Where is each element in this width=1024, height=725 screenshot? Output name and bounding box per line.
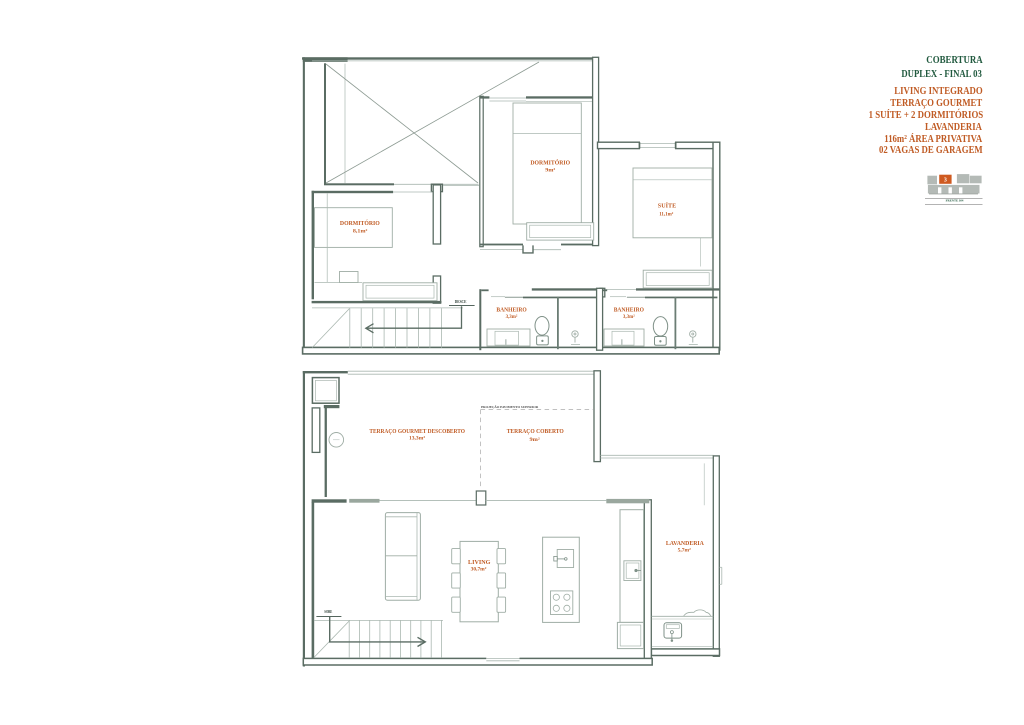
svg-text:LAVANDERIA: LAVANDERIA	[666, 540, 704, 547]
svg-text:1 SUÍTE + 2 DORMITÓRIOS: 1 SUÍTE + 2 DORMITÓRIOS	[869, 109, 984, 121]
svg-text:DUPLEX - FINAL 03: DUPLEX - FINAL 03	[901, 68, 982, 80]
svg-text:BANHEIRO: BANHEIRO	[496, 306, 526, 313]
svg-text:3,3m²: 3,3m²	[506, 314, 518, 320]
svg-text:3,3m²: 3,3m²	[623, 314, 635, 320]
svg-text:FRENTE 304: FRENTE 304	[946, 199, 964, 203]
svg-text:SUÍTE: SUÍTE	[658, 202, 676, 210]
svg-text:TERRAÇO GOURMET: TERRAÇO GOURMET	[890, 97, 982, 109]
svg-text:DORMITÓRIO: DORMITÓRIO	[340, 219, 380, 227]
svg-text:BANHEIRO: BANHEIRO	[614, 306, 644, 313]
svg-text:TERRAÇO GOURMET DESCOBERTO: TERRAÇO GOURMET DESCOBERTO	[369, 428, 465, 435]
svg-text:9m²: 9m²	[545, 167, 555, 173]
svg-text:LIVING INTEGRADO: LIVING INTEGRADO	[894, 85, 983, 97]
svg-text:LAVANDERIA: LAVANDERIA	[925, 121, 982, 133]
svg-text:02 VAGAS DE GARAGEM: 02 VAGAS DE GARAGEM	[879, 144, 983, 156]
svg-text:PROJEÇÃO PAVIMENTO SUPERIOR: PROJEÇÃO PAVIMENTO SUPERIOR	[481, 404, 539, 409]
svg-text:TERRAÇO COBERTO: TERRAÇO COBERTO	[507, 428, 564, 435]
svg-text:3: 3	[944, 178, 947, 184]
svg-text:8,1m²: 8,1m²	[353, 228, 368, 234]
svg-text:30,7m²: 30,7m²	[471, 567, 487, 573]
svg-text:9m²: 9m²	[530, 437, 541, 443]
svg-text:SOBE: SOBE	[324, 610, 332, 614]
svg-text:LIVING: LIVING	[468, 559, 490, 566]
svg-text:11,1m²: 11,1m²	[659, 211, 674, 217]
svg-text:DORMITÓRIO: DORMITÓRIO	[530, 158, 570, 166]
svg-text:COBERTURA: COBERTURA	[926, 54, 982, 66]
svg-text:13,3m²: 13,3m²	[409, 436, 426, 442]
svg-text:DESCE: DESCE	[455, 300, 467, 304]
svg-text:5,7m²: 5,7m²	[678, 548, 692, 554]
